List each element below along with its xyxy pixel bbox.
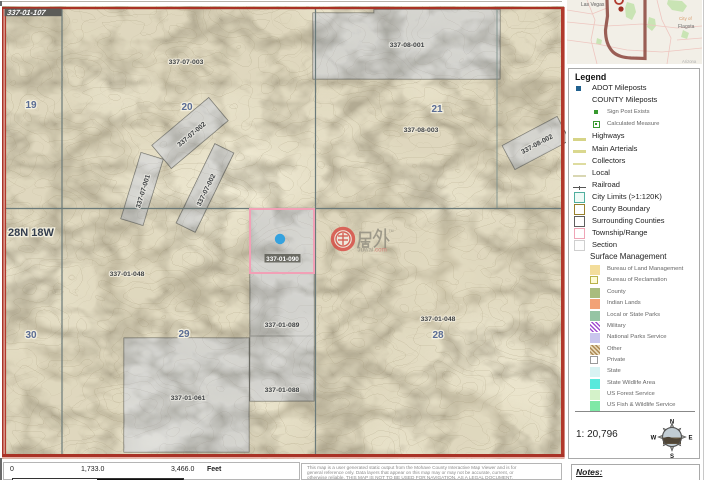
- svg-text:337-01-090: 337-01-090: [266, 256, 299, 263]
- svg-text:337-08-003: 337-08-003: [404, 127, 439, 134]
- svg-text:City of: City of: [679, 16, 693, 21]
- svg-text:337-01-061: 337-01-061: [171, 395, 206, 402]
- svg-text:Las Vegas: Las Vegas: [581, 2, 605, 8]
- svg-text:19: 19: [25, 100, 37, 111]
- svg-text:30: 30: [25, 330, 37, 341]
- svg-text:Arizona: Arizona: [682, 59, 697, 64]
- svg-text:28N 18W: 28N 18W: [8, 227, 54, 239]
- svg-text:Juwai.com: Juwai.com: [358, 247, 387, 254]
- svg-text:N: N: [670, 420, 674, 426]
- svg-text:337-01-107: 337-01-107: [7, 8, 47, 17]
- svg-text:337-08-001: 337-08-001: [390, 42, 425, 49]
- svg-text:337-01-089: 337-01-089: [265, 322, 300, 329]
- svg-text:Flagsta: Flagsta: [678, 24, 695, 30]
- svg-text:29: 29: [178, 329, 190, 340]
- svg-text:TM: TM: [389, 229, 394, 233]
- svg-text:S: S: [670, 454, 674, 459]
- svg-text:337-07-003: 337-07-003: [169, 59, 204, 66]
- svg-text:E: E: [688, 436, 692, 442]
- svg-text:337-01-088: 337-01-088: [265, 387, 300, 394]
- svg-text:21: 21: [431, 104, 443, 115]
- svg-text:337-01-048: 337-01-048: [110, 271, 145, 278]
- svg-text:W: W: [651, 436, 657, 442]
- svg-text:20: 20: [181, 102, 193, 113]
- svg-text:337-01-048: 337-01-048: [421, 316, 456, 323]
- svg-text:28: 28: [432, 330, 444, 341]
